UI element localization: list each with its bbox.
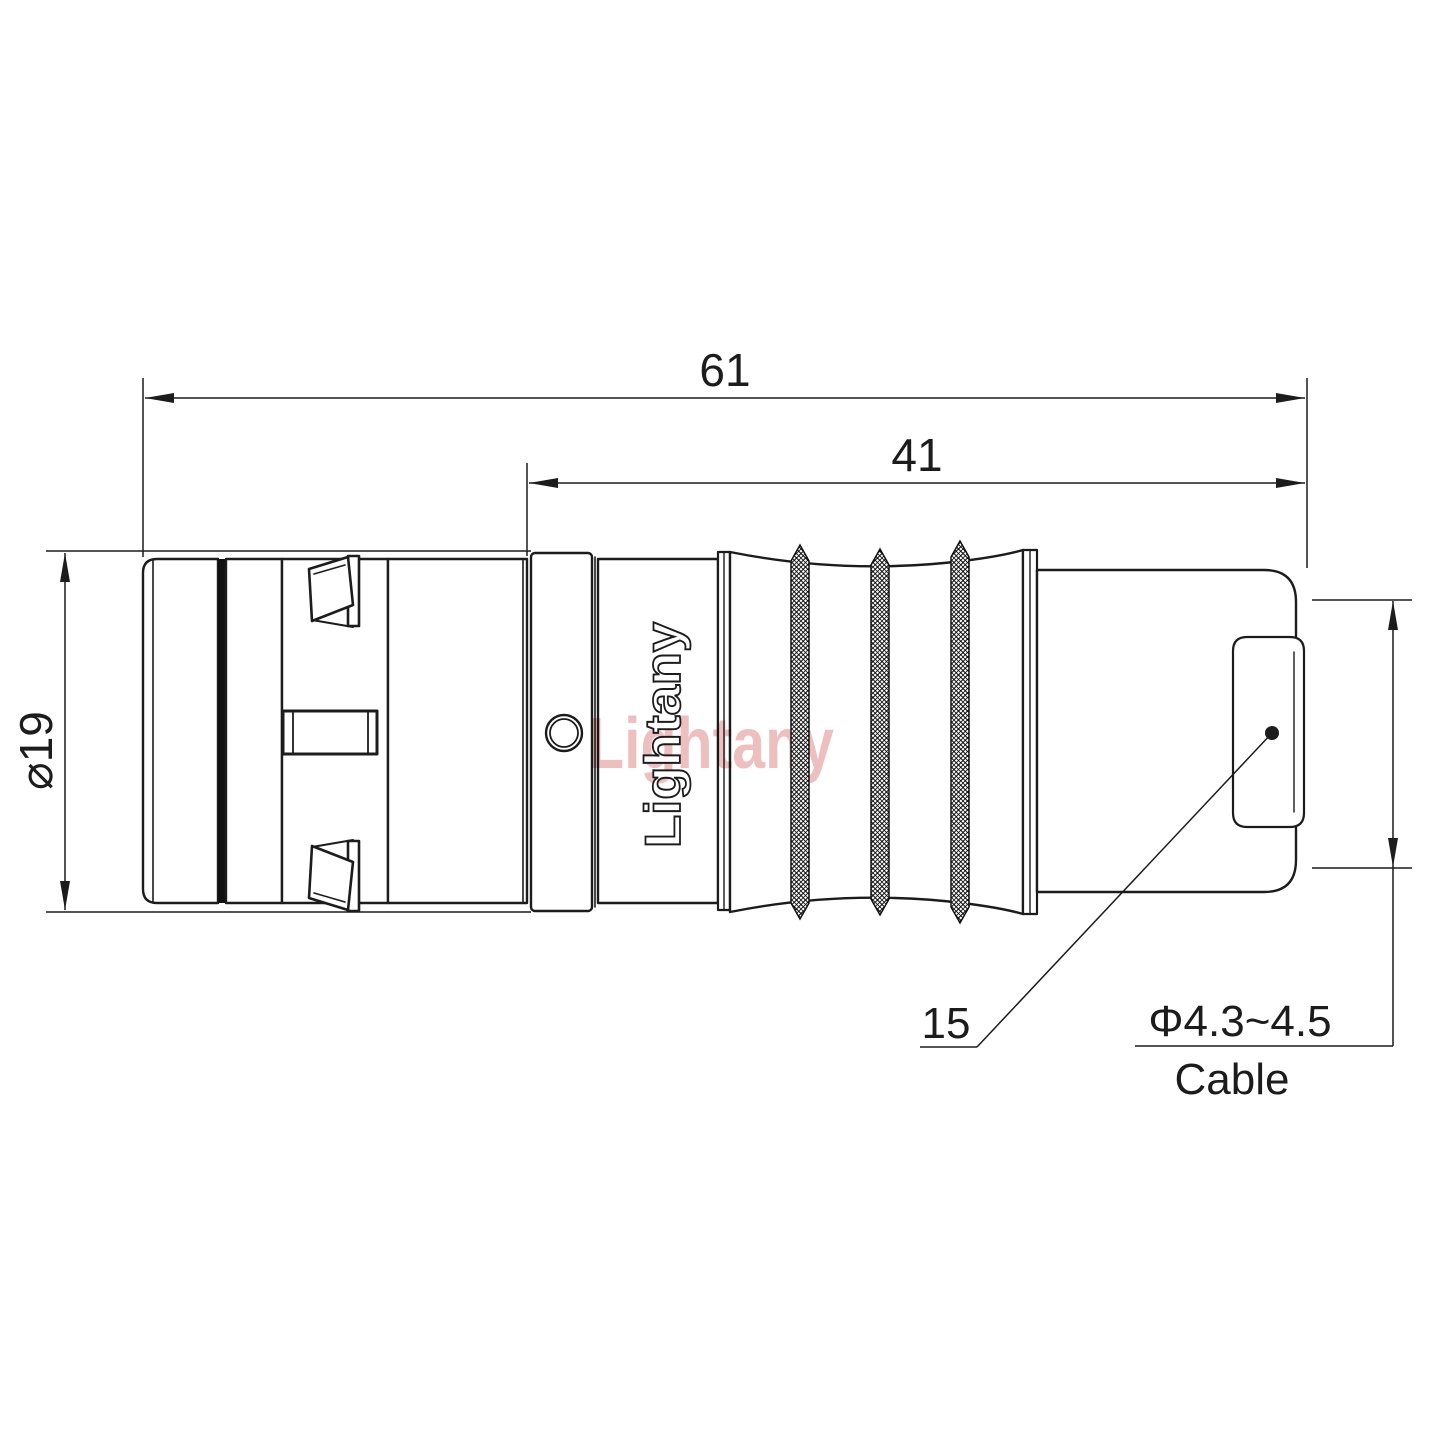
knurl-band-2 [871,549,889,915]
dim-outer-diameter-label: ⌀19 [10,711,62,790]
leader-dot [1265,726,1279,740]
cable-word-label: Cable [1175,1055,1290,1104]
brand-text: Lightany [635,622,691,848]
knurl-band-3 [951,541,969,923]
dim-total-length-label: 61 [699,344,750,396]
arrowhead-top [1388,601,1398,630]
cable-diameter-label: Φ4.3~4.5 [1148,997,1331,1046]
mid-shell-section [388,559,527,903]
coupling-nut-section [143,559,218,903]
connector-technical-drawing: Lightany Lightany [0,0,1440,1440]
end-flange [1023,550,1037,914]
arrowhead-left [145,393,174,403]
arrowhead-bottom [1388,838,1398,867]
arrowhead-top [60,553,70,582]
drawing-page: Lightany Lightany [0,0,1440,1440]
vent-hole-inner [550,719,578,747]
dimension-total-length [143,378,1307,568]
boot-leader-label: 15 [922,999,971,1048]
latch-slot [283,711,377,754]
arrowhead-left [529,478,558,488]
cable-boot [1037,570,1304,892]
knurl-band-1 [791,545,809,919]
arrowhead-right [1276,478,1305,488]
arrowhead-bottom [60,881,70,910]
arrowhead-right [1276,393,1305,403]
dim-front-length-label: 41 [891,429,942,481]
max-diameter-ring [531,553,592,911]
latch-section [282,556,388,911]
nut-ring-section [226,559,282,903]
